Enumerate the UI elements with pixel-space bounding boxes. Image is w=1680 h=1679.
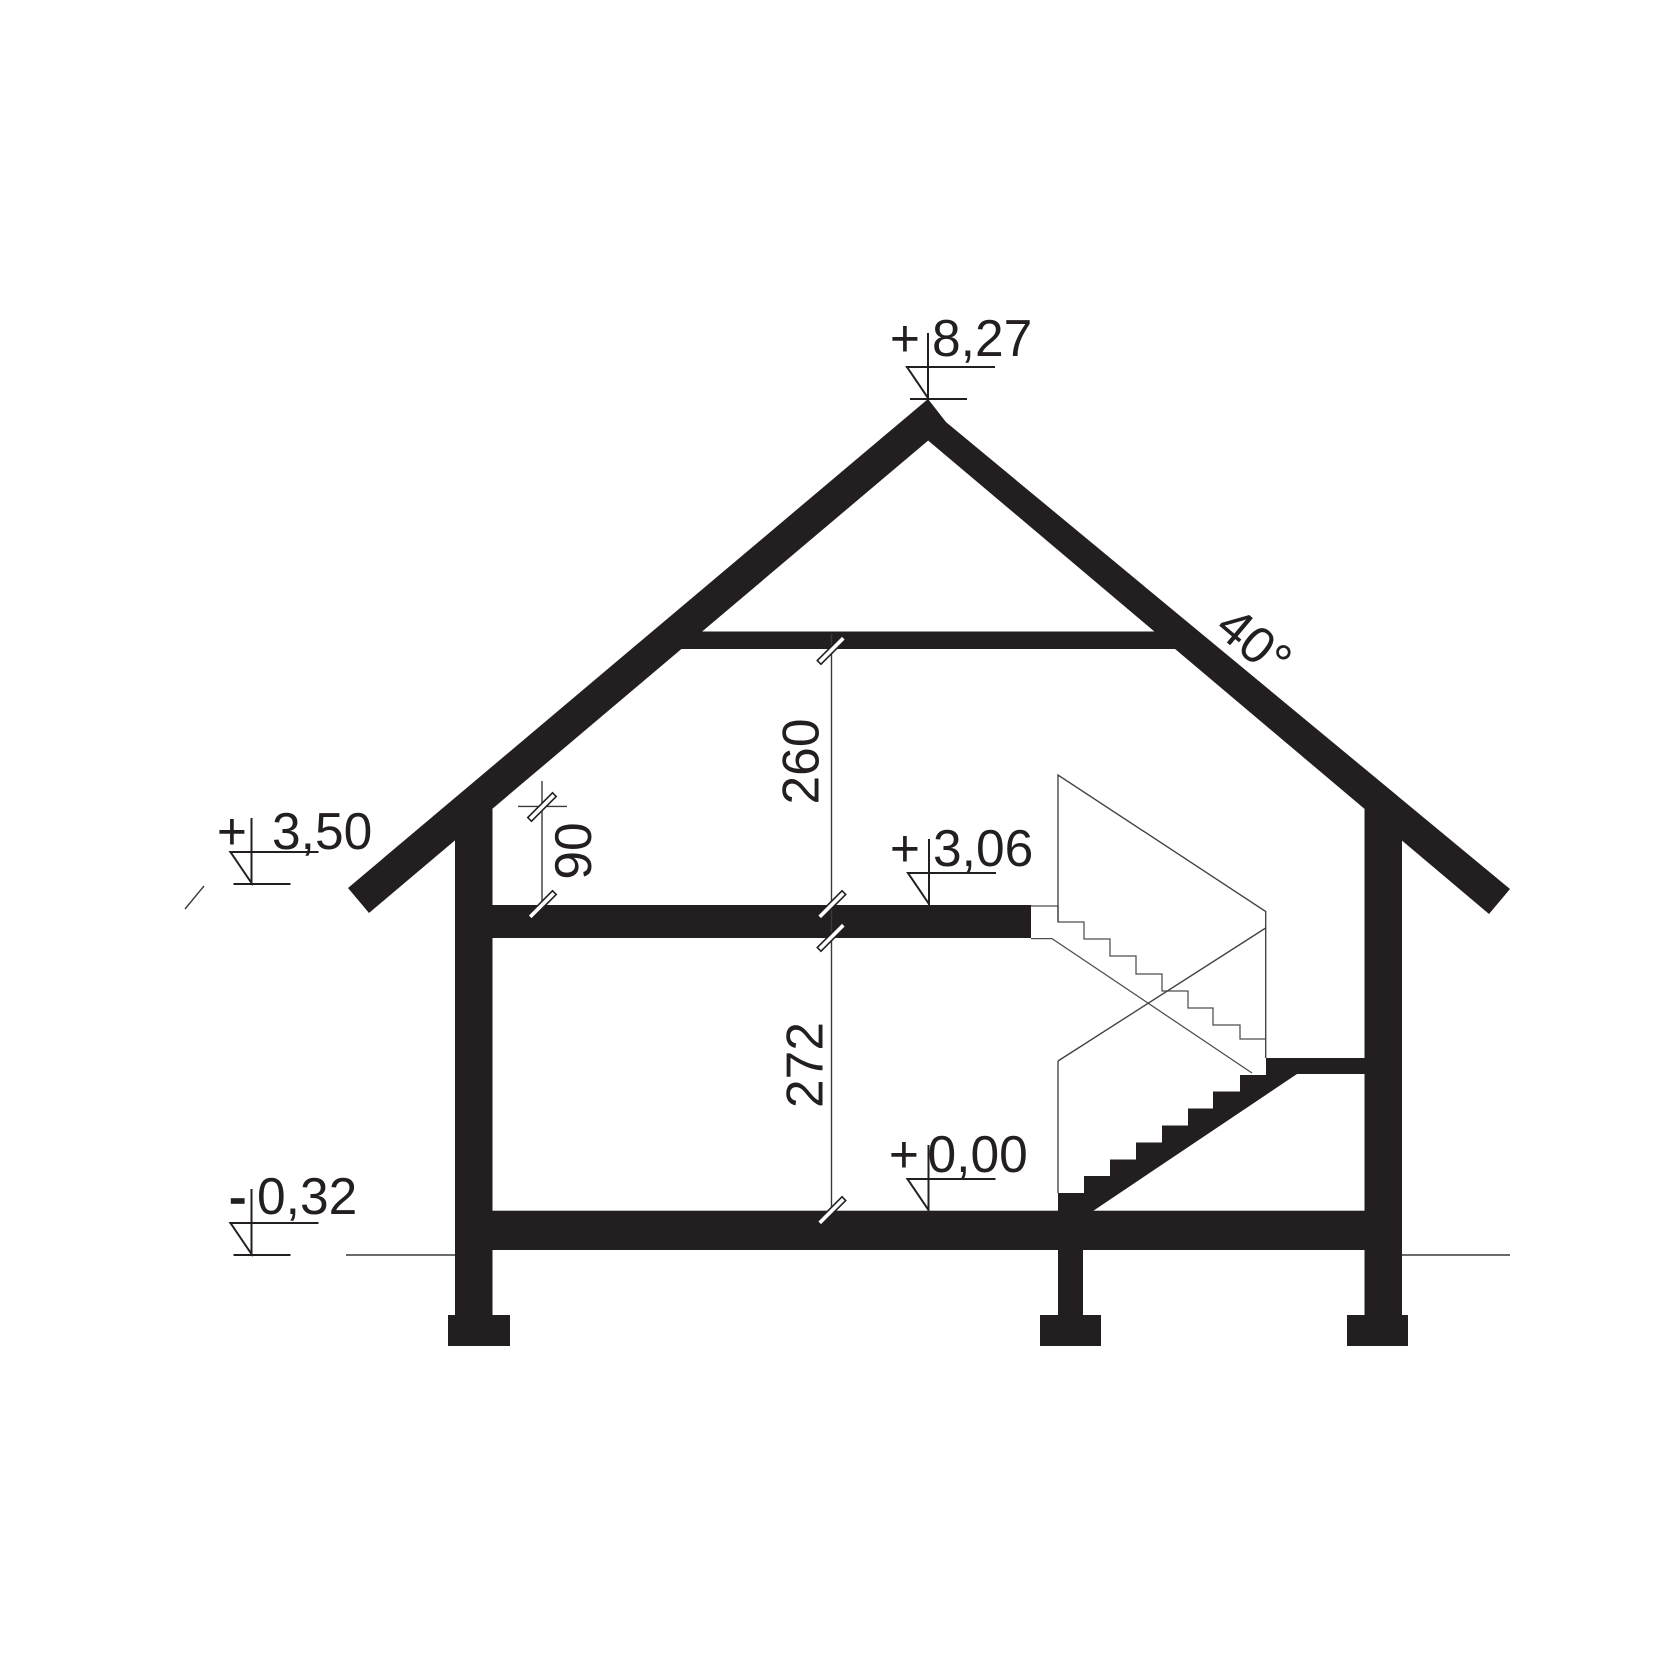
svg-text:+: + [890, 819, 920, 877]
svg-text:+: + [217, 802, 247, 860]
svg-text:+: + [890, 309, 920, 367]
svg-text:+: + [889, 1125, 919, 1183]
svg-text:260: 260 [772, 719, 830, 805]
svg-text:3,50: 3,50 [272, 802, 372, 860]
svg-text:8,27: 8,27 [932, 309, 1032, 367]
svg-text:272: 272 [776, 1022, 834, 1108]
svg-text:0,32: 0,32 [257, 1167, 357, 1225]
svg-text:0,00: 0,00 [928, 1125, 1028, 1183]
svg-text:3,06: 3,06 [933, 819, 1033, 877]
svg-text:90: 90 [544, 822, 602, 879]
